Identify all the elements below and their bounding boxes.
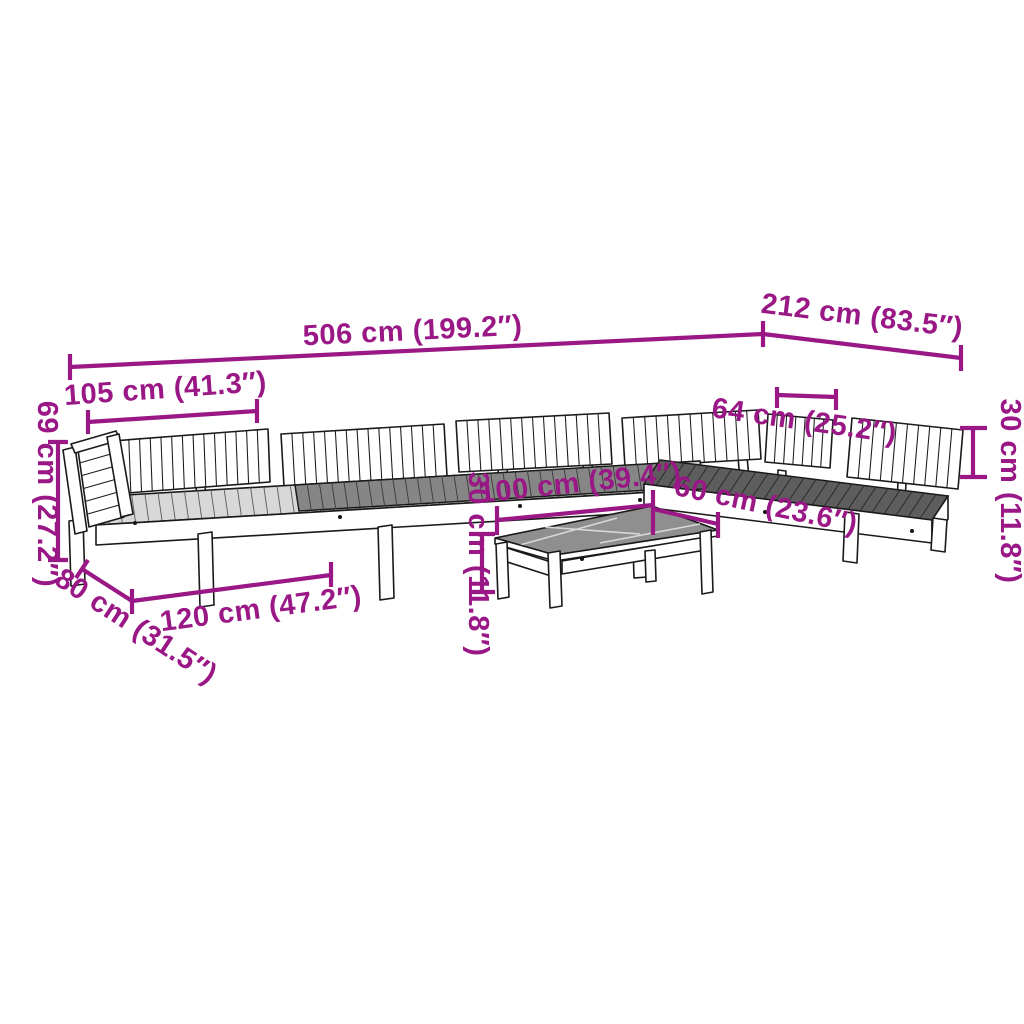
dim-label-seat-section: 120 cm (47.2″) (158, 580, 364, 638)
sofa-leg (198, 532, 214, 607)
screw (638, 498, 642, 502)
dimension-diagram: 506 cm (199.2″) 212 cm (83.5″) 105 cm (4… (0, 0, 1024, 1024)
pallet-sofa-set-drawing: 506 cm (199.2″) 212 cm (83.5″) 105 cm (4… (0, 0, 1024, 1024)
dim-label-total-height: 69 cm (27.2″) (31, 401, 63, 587)
table-leg (645, 550, 656, 582)
screw (580, 557, 584, 561)
dim-label-table-height: 30 cm (11.8″) (462, 472, 494, 657)
table-leg (548, 551, 562, 608)
sofa-leg (378, 525, 394, 600)
dim-label-backrest-height: 30 cm (11.8″) (994, 399, 1024, 584)
coffee-table (495, 506, 718, 608)
dim-line-backrest-width (777, 395, 836, 397)
table-leg (700, 530, 713, 594)
sofa-leg (931, 518, 947, 552)
dim-line-section (88, 411, 257, 422)
screw (133, 521, 137, 525)
table-leg (496, 542, 509, 599)
backrest-panel-3 (456, 413, 612, 472)
screw (910, 529, 914, 533)
screw (338, 515, 342, 519)
dim-label-section-length: 105 cm (41.3″) (63, 366, 268, 412)
